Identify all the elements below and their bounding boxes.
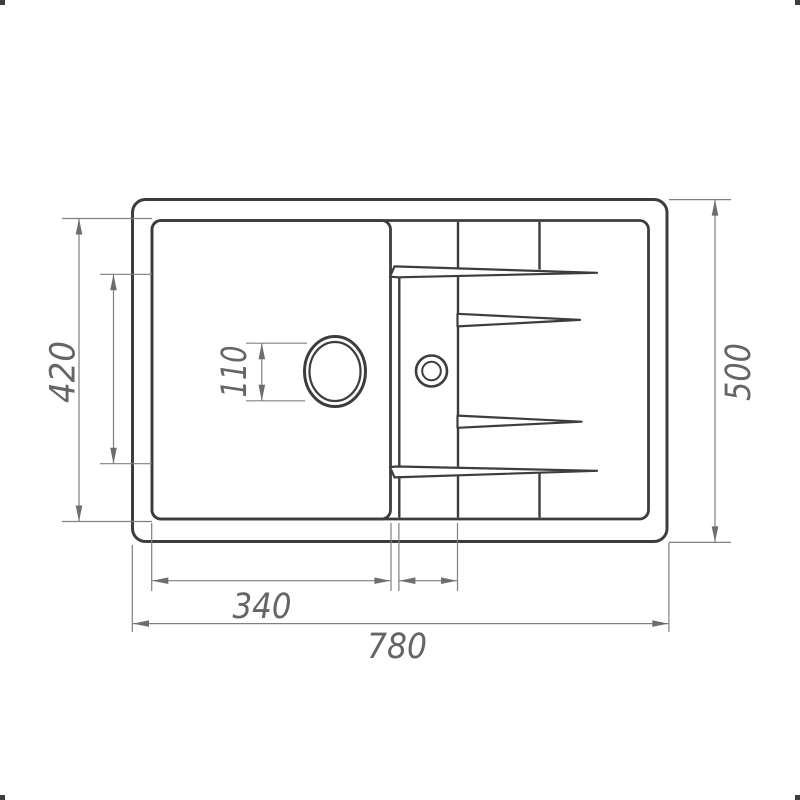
dim-label-drain-hole: 110 xyxy=(215,346,255,398)
tap-hole-inner xyxy=(422,362,441,381)
drainboard-groove-2 xyxy=(458,314,581,327)
dim-label-overall-width: 780 xyxy=(367,627,427,667)
dim-label-bowl-width: 340 xyxy=(233,587,292,627)
drain-hole-outer xyxy=(305,337,366,407)
drainboard-groove-3 xyxy=(458,416,582,428)
tap-hole-outer xyxy=(416,356,447,387)
sink-body xyxy=(133,200,668,542)
technical-drawing-page: 420 110 500 340 780 xyxy=(0,0,800,800)
bowl xyxy=(152,221,391,520)
dim-label-bowl-depth: 420 xyxy=(44,341,84,403)
drainboard-groove-4 xyxy=(390,467,597,478)
sink-technical-drawing: 420 110 500 340 780 xyxy=(0,0,800,800)
dim-label-overall-depth: 500 xyxy=(719,343,759,401)
dimension-lines xyxy=(62,200,731,632)
drain-hole-inner xyxy=(310,342,361,401)
drainboard-groove-1 xyxy=(390,266,597,277)
